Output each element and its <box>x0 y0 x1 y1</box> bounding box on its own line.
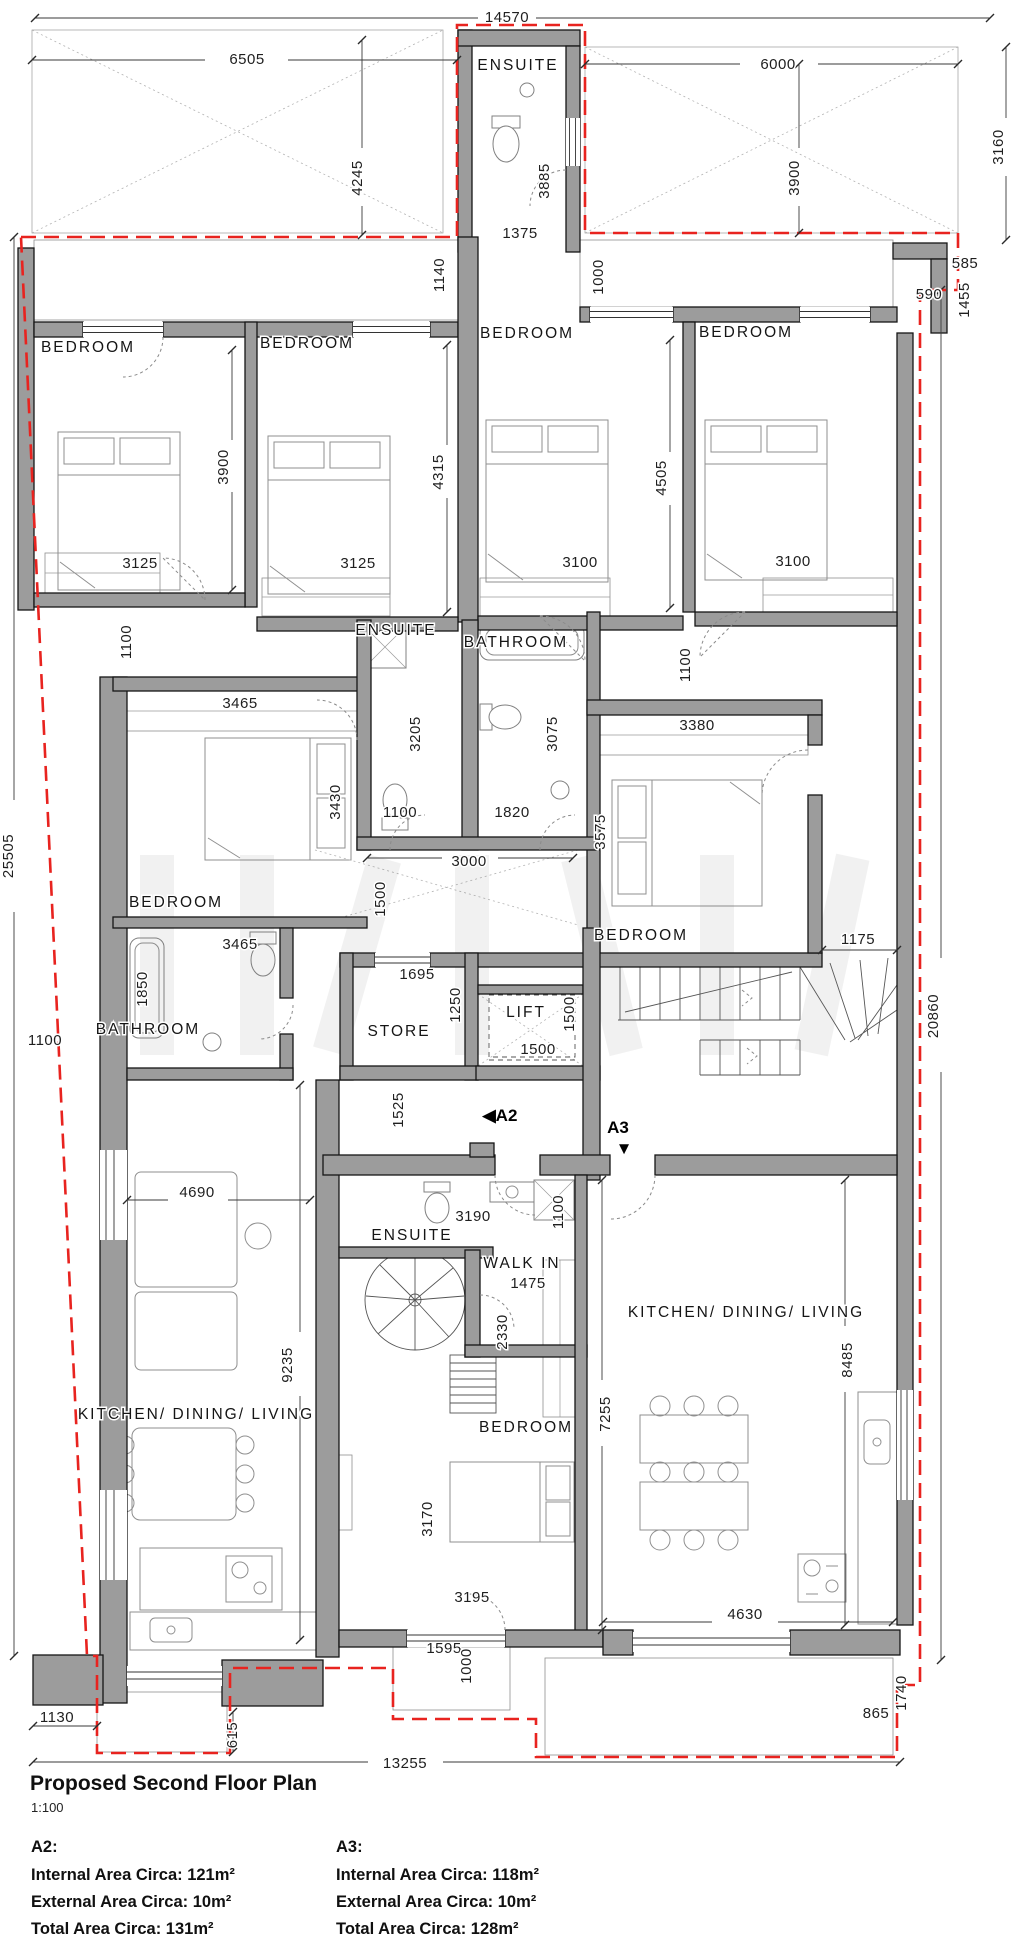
room-label: WALK IN <box>483 1255 560 1272</box>
plan-svg: ENSUITEBEDROOMBEDROOMBEDROOMBEDROOMENSUI… <box>0 0 1024 1940</box>
total-area: Total Area Circa: 131m² <box>31 1916 235 1943</box>
room-label: BEDROOM <box>41 339 135 356</box>
bed <box>58 432 180 590</box>
dimension-label: 1820 <box>494 804 529 821</box>
dimension-label: 6505 <box>229 51 264 68</box>
dimension-label: 13255 <box>383 1755 427 1772</box>
stair-main <box>618 958 897 1075</box>
room-label: BEDROOM <box>699 324 793 341</box>
dimension-label: 9235 <box>279 1347 296 1382</box>
dimension-label: 3885 <box>536 163 553 198</box>
dimension-label: 3160 <box>990 129 1007 164</box>
room-label: BEDROOM <box>260 335 354 352</box>
dimension-label: 3195 <box>454 1589 489 1606</box>
external-area: External Area Circa: 10m² <box>336 1889 539 1916</box>
dimension-label: 20860 <box>925 994 942 1038</box>
dimension-label: 14570 <box>485 9 529 26</box>
room-label: BEDROOM <box>129 894 223 911</box>
dimension-label: 1100 <box>118 625 135 659</box>
apartment-a3-summary: A3: Internal Area Circa: 118m² External … <box>336 1834 539 1943</box>
internal-area: Internal Area Circa: 118m² <box>336 1862 539 1889</box>
dimension-label: 3575 <box>592 814 609 849</box>
room-label: STORE <box>367 1023 430 1040</box>
dimension-label: 1500 <box>372 881 389 916</box>
room-label: BATHROOM <box>464 634 568 651</box>
sofa <box>135 1172 271 1370</box>
dimension-label: 615 <box>224 1722 241 1749</box>
dimension-label: 1475 <box>510 1275 545 1292</box>
dimension-label: 3000 <box>451 853 486 870</box>
dimension-label: 3125 <box>340 555 375 572</box>
bed <box>450 1462 574 1542</box>
room-label: BEDROOM <box>480 325 574 342</box>
dimension-label: 4690 <box>179 1184 214 1201</box>
dimension-label: 1595 <box>426 1640 461 1657</box>
dimension-label: 1175 <box>841 931 875 948</box>
room-label: ENSUITE <box>477 57 558 74</box>
dimension-label: 590 <box>916 286 943 303</box>
plan-title: Proposed Second Floor Plan <box>30 1772 317 1796</box>
kitchen-counter <box>798 1392 897 1624</box>
dimension-label: 1250 <box>447 987 464 1022</box>
dimension-label: 1695 <box>399 966 434 983</box>
stair-treads-small <box>450 1355 496 1413</box>
apartment-a2-summary: A2: Internal Area Circa: 121m² External … <box>31 1834 235 1943</box>
unit-marker-a3: A3 <box>607 1118 629 1137</box>
dimension-label: 1850 <box>134 971 151 1006</box>
room-label: KITCHEN/ DINING/ LIVING <box>628 1304 864 1321</box>
dimension-label: 1130 <box>40 1709 74 1726</box>
external-area: External Area Circa: 10m² <box>31 1889 235 1916</box>
dimension-label: 3190 <box>455 1208 490 1225</box>
dimension-label: 1000 <box>458 1648 475 1683</box>
dimension-label: 1100 <box>550 1195 567 1229</box>
dimension-label: 3100 <box>562 554 597 571</box>
dimension-label: 4315 <box>430 454 447 489</box>
dimension-label: 4505 <box>653 460 670 495</box>
dimension-label: 3125 <box>122 555 157 572</box>
dimension-label: 1100 <box>28 1032 62 1049</box>
room-label: BEDROOM <box>594 927 688 944</box>
dimension-label: 1000 <box>590 259 607 294</box>
dimension-label: 1500 <box>561 996 578 1031</box>
dimension-label: 1100 <box>383 804 417 821</box>
dimension-label: 585 <box>952 255 979 272</box>
dimension-label: 2330 <box>494 1314 511 1349</box>
dining-table <box>640 1396 748 1550</box>
apartment-id: A2: <box>31 1834 235 1861</box>
dimension-label: 1525 <box>390 1092 407 1127</box>
dining-table <box>116 1428 254 1520</box>
dimension-label: 25505 <box>0 834 17 878</box>
apartment-id: A3: <box>336 1834 539 1861</box>
dimension-label: 1455 <box>956 282 973 317</box>
dimension-label: 7255 <box>597 1396 614 1431</box>
floor-plan-page: ENSUITEBEDROOMBEDROOMBEDROOMBEDROOMENSUI… <box>0 0 1024 1940</box>
dimension-label: 3075 <box>544 716 561 751</box>
total-area: Total Area Circa: 128m² <box>336 1916 539 1943</box>
dimension-label: 1740 <box>893 1675 910 1710</box>
dimension-label: 4245 <box>349 160 366 195</box>
unit-marker-a2: ◀A2 <box>482 1106 518 1125</box>
dimension-label: 3430 <box>327 784 344 819</box>
unit-marker-a3-arrow: ▼ <box>616 1139 633 1158</box>
dimension-label: 8485 <box>839 1342 856 1377</box>
dimension-label: 1140 <box>431 258 448 292</box>
dimension-label: 3205 <box>407 716 424 751</box>
internal-area: Internal Area Circa: 121m² <box>31 1862 235 1889</box>
dimension-label: 1500 <box>520 1041 555 1058</box>
dimension-label: 3900 <box>786 160 803 195</box>
dimension-label: 1100 <box>677 648 694 682</box>
room-label: ENSUITE <box>371 1227 452 1244</box>
dimension-label: 3900 <box>215 449 232 484</box>
spiral-stair <box>365 1250 465 1350</box>
kitchen-island <box>130 1548 322 1650</box>
dimension-label: 3465 <box>222 936 257 953</box>
dimension-label: 6000 <box>760 56 795 73</box>
dimension-label: 4630 <box>727 1606 762 1623</box>
dimension-label: 3380 <box>679 717 714 734</box>
dimension-label: 3170 <box>419 1501 436 1536</box>
room-label: BEDROOM <box>479 1419 573 1436</box>
dimension-label: 865 <box>863 1705 890 1722</box>
toilet <box>492 83 534 162</box>
dimension-label: 1375 <box>502 225 537 242</box>
dimension-label: 3465 <box>222 695 257 712</box>
plan-scale: 1:100 <box>31 1800 64 1815</box>
room-label: LIFT <box>506 1004 546 1021</box>
room-label: BATHROOM <box>96 1021 200 1038</box>
room-label: ENSUITE <box>355 622 436 639</box>
bed <box>612 780 762 906</box>
room-label: KITCHEN/ DINING/ LIVING <box>78 1406 314 1423</box>
dimension-label: 3100 <box>775 553 810 570</box>
